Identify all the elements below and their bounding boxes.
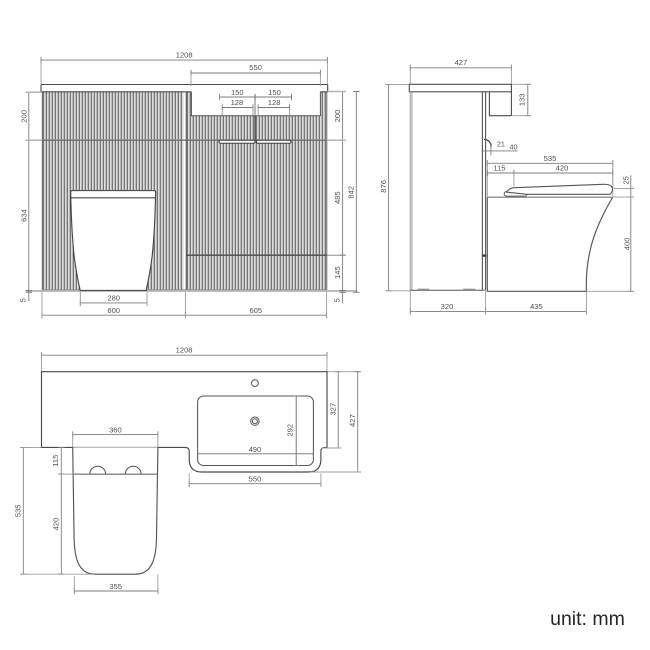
svg-text:128: 128	[231, 98, 244, 107]
svg-text:150: 150	[268, 88, 281, 97]
svg-text:605: 605	[249, 306, 262, 315]
svg-text:200: 200	[19, 110, 28, 123]
svg-text:634: 634	[19, 209, 28, 222]
svg-text:427: 427	[348, 414, 357, 427]
svg-text:320: 320	[441, 302, 454, 311]
svg-text:128: 128	[268, 98, 281, 107]
svg-text:355: 355	[109, 582, 122, 591]
svg-text:490: 490	[249, 445, 262, 454]
svg-text:200: 200	[333, 110, 342, 123]
svg-text:550: 550	[249, 474, 262, 483]
svg-text:280: 280	[107, 293, 120, 302]
svg-text:876: 876	[379, 180, 388, 193]
svg-text:600: 600	[107, 306, 120, 315]
svg-text:150: 150	[231, 88, 244, 97]
svg-text:1208: 1208	[176, 50, 193, 59]
svg-text:535: 535	[13, 504, 22, 517]
svg-text:5: 5	[19, 298, 28, 302]
svg-text:unit: mm: unit: mm	[550, 608, 625, 630]
svg-text:535: 535	[544, 154, 557, 163]
svg-text:400: 400	[623, 238, 632, 251]
svg-text:327: 327	[329, 403, 338, 416]
svg-text:360: 360	[109, 425, 122, 434]
svg-text:115: 115	[51, 455, 60, 467]
svg-text:40: 40	[510, 143, 518, 152]
svg-text:145: 145	[333, 266, 342, 279]
svg-text:550: 550	[249, 63, 262, 72]
svg-text:133: 133	[518, 93, 527, 106]
svg-text:1208: 1208	[176, 346, 193, 355]
svg-text:21: 21	[497, 139, 505, 148]
svg-text:25: 25	[621, 176, 630, 184]
svg-text:420: 420	[556, 164, 569, 173]
svg-text:420: 420	[52, 518, 61, 531]
svg-text:115: 115	[493, 164, 505, 173]
svg-text:5: 5	[332, 298, 341, 302]
svg-text:292: 292	[286, 424, 295, 437]
svg-text:435: 435	[530, 302, 543, 311]
svg-text:427: 427	[455, 58, 468, 67]
svg-text:485: 485	[333, 191, 342, 204]
svg-text:842: 842	[347, 186, 356, 199]
